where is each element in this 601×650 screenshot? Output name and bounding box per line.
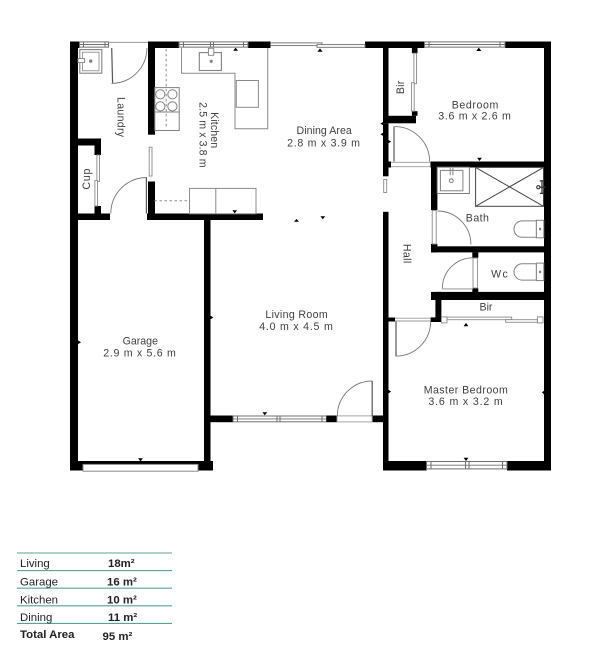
svg-text:95 m²: 95 m² bbox=[103, 631, 133, 643]
svg-text:18m²: 18m² bbox=[108, 558, 135, 570]
svg-text:Wc: Wc bbox=[491, 268, 509, 280]
svg-text:2.5 m x 3.8 m: 2.5 m x 3.8 m bbox=[196, 102, 208, 168]
svg-text:Bath: Bath bbox=[466, 213, 490, 225]
svg-text:2.8 m x 3.9 m: 2.8 m x 3.9 m bbox=[287, 137, 361, 149]
svg-text:Bir: Bir bbox=[480, 301, 493, 313]
svg-text:3.6 m x 3.2 m: 3.6 m x 3.2 m bbox=[428, 396, 503, 408]
svg-text:11 m²: 11 m² bbox=[108, 612, 137, 624]
svg-text:Laundry: Laundry bbox=[115, 97, 127, 138]
svg-text:Garage: Garage bbox=[123, 336, 158, 348]
svg-text:Dining: Dining bbox=[20, 612, 52, 624]
svg-text:Living Room: Living Room bbox=[265, 309, 328, 321]
svg-text:Total Area: Total Area bbox=[20, 629, 75, 641]
svg-text:Bir: Bir bbox=[395, 80, 407, 94]
svg-text:3.6 m x 2.6 m: 3.6 m x 2.6 m bbox=[438, 111, 511, 123]
svg-text:Hall: Hall bbox=[400, 244, 412, 264]
svg-text:2.9 m x 5.6 m: 2.9 m x 5.6 m bbox=[103, 347, 176, 359]
svg-text:4.0 m x 4.5 m: 4.0 m x 4.5 m bbox=[259, 321, 333, 333]
svg-text:16 m²: 16 m² bbox=[107, 576, 137, 588]
svg-text:Kitchen: Kitchen bbox=[208, 112, 220, 148]
svg-text:10 m²: 10 m² bbox=[107, 594, 137, 606]
svg-text:Master Bedroom: Master Bedroom bbox=[424, 384, 509, 396]
svg-text:Cup: Cup bbox=[81, 168, 93, 190]
svg-text:Dining Area: Dining Area bbox=[297, 125, 352, 137]
svg-text:Kitchen: Kitchen bbox=[20, 594, 58, 606]
svg-text:Garage: Garage bbox=[20, 576, 58, 588]
svg-text:Bedroom: Bedroom bbox=[452, 100, 499, 112]
svg-text:Living: Living bbox=[20, 558, 50, 570]
